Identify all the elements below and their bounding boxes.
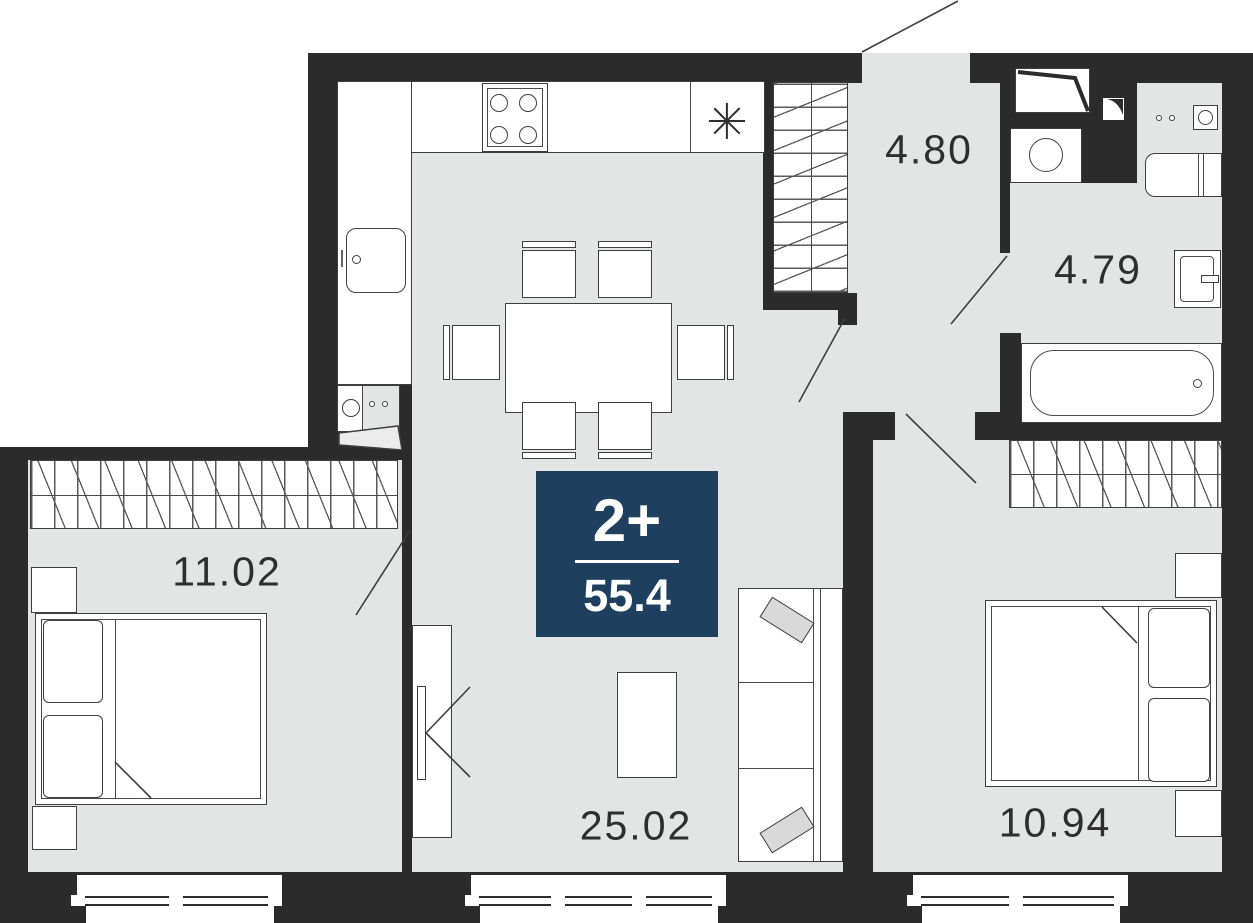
washing-machine-drum — [1029, 138, 1063, 172]
window-mullion-bar — [471, 898, 726, 904]
area-label-bedroom-left: 11.02 — [172, 549, 282, 596]
sofa-back-line — [820, 589, 821, 861]
chair-back — [522, 452, 576, 459]
badge-area-value: 55.4 — [583, 573, 671, 618]
nightstand — [1175, 790, 1222, 837]
sofa-back-line — [813, 589, 814, 861]
dining-table — [505, 303, 672, 413]
appliance-tray — [363, 386, 399, 431]
window-bedroom-right — [913, 875, 1128, 896]
window-bedroom-left — [77, 875, 282, 896]
appliance-dot-icon — [369, 401, 375, 407]
washbasin-bowl — [1198, 110, 1213, 125]
wall-hallway-bathroom — [1000, 83, 1010, 253]
window-mullion — [465, 895, 479, 906]
window-mullion — [907, 895, 921, 906]
chair-back — [443, 325, 450, 380]
wall-closet-bottom — [763, 293, 848, 310]
vent-corner-icon — [1103, 98, 1124, 120]
type-area-badge: 2+ 55.4 — [536, 471, 718, 637]
wardrobe-midline — [1010, 474, 1221, 475]
window-mullion — [169, 895, 183, 906]
area-label-hallway: 4.80 — [885, 127, 973, 174]
wall-closet-corner — [838, 293, 857, 325]
stove-burner-icon — [519, 94, 537, 112]
stove-burner-icon — [490, 94, 508, 112]
closet-midline — [811, 83, 812, 292]
bed-divider-line — [115, 620, 116, 798]
chair — [522, 250, 576, 298]
sofa-seat-line — [739, 768, 813, 769]
appliance-dial-icon — [342, 399, 360, 417]
entrance-door-swing-line — [862, 1, 958, 52]
counter-section-line — [690, 82, 691, 152]
window-mullion — [712, 895, 726, 906]
bathtub-drain — [1193, 379, 1202, 388]
badge-rooms-label: 2+ — [593, 491, 661, 551]
sofa-seat-line — [739, 682, 813, 683]
chair-back — [727, 325, 734, 380]
window-mullion — [268, 895, 282, 906]
window-mullion — [1009, 895, 1023, 906]
nightstand — [31, 567, 77, 613]
chair-back — [598, 452, 652, 459]
window-outer-sill — [922, 906, 1120, 923]
wardrobe-bedroom-right — [1009, 440, 1222, 508]
bathtub-inner — [1030, 350, 1214, 416]
chair — [522, 402, 576, 450]
chair-back — [522, 241, 576, 248]
badge-divider — [575, 560, 679, 563]
chair — [598, 250, 652, 298]
entrance-door-opening — [862, 53, 970, 83]
vanity-line — [1203, 154, 1204, 196]
stove-burner-icon — [490, 126, 508, 144]
window-mullion — [551, 895, 565, 906]
coffee-table — [617, 672, 677, 778]
wardrobe-midline — [31, 495, 397, 496]
vent-shaft-icon — [1015, 68, 1090, 113]
wall-bathtub-side — [1000, 333, 1021, 423]
floor-plan: 2+ 55.4 — [0, 0, 1253, 923]
bed-pillow — [1148, 698, 1210, 782]
bed-divider-line — [1138, 607, 1139, 780]
chair-back — [598, 241, 652, 248]
tv-icon — [417, 686, 426, 780]
window-mullion — [632, 895, 646, 906]
floor-hallway-passage — [843, 310, 1010, 412]
chair — [452, 325, 500, 380]
faucet-dot-icon — [1156, 115, 1162, 121]
wardrobe-bedroom-left — [30, 460, 398, 529]
chair — [598, 402, 652, 450]
window-mullion — [1114, 895, 1128, 906]
nightstand — [32, 806, 77, 850]
stove-burner-icon — [519, 126, 537, 144]
hallway-closet — [773, 82, 848, 293]
appliance-dot-icon — [382, 401, 388, 407]
bed-pillow — [43, 620, 103, 703]
window-living — [471, 875, 726, 896]
nightstand — [1175, 553, 1222, 598]
window-mullion — [71, 895, 85, 906]
bathroom-door-opening — [1000, 253, 1021, 333]
bedroom-right-door-opening — [895, 412, 975, 440]
area-label-bedroom-right: 10.94 — [999, 800, 1112, 847]
toilet-flush-handle — [1201, 275, 1219, 283]
floor-hallway — [848, 83, 1000, 310]
bathroom-vanity — [1145, 153, 1222, 197]
area-label-living-kitchen: 25.02 — [580, 803, 693, 850]
vanity-line — [1198, 154, 1199, 196]
window-outer-sill — [86, 906, 274, 923]
sink-faucet-icon — [352, 255, 361, 264]
bed-pillow — [43, 715, 103, 798]
bed-pillow — [1148, 608, 1210, 688]
area-label-bathroom: 4.79 — [1054, 247, 1142, 294]
chair — [677, 325, 725, 380]
window-outer-sill — [480, 906, 718, 923]
faucet-dot-icon — [1169, 115, 1175, 121]
